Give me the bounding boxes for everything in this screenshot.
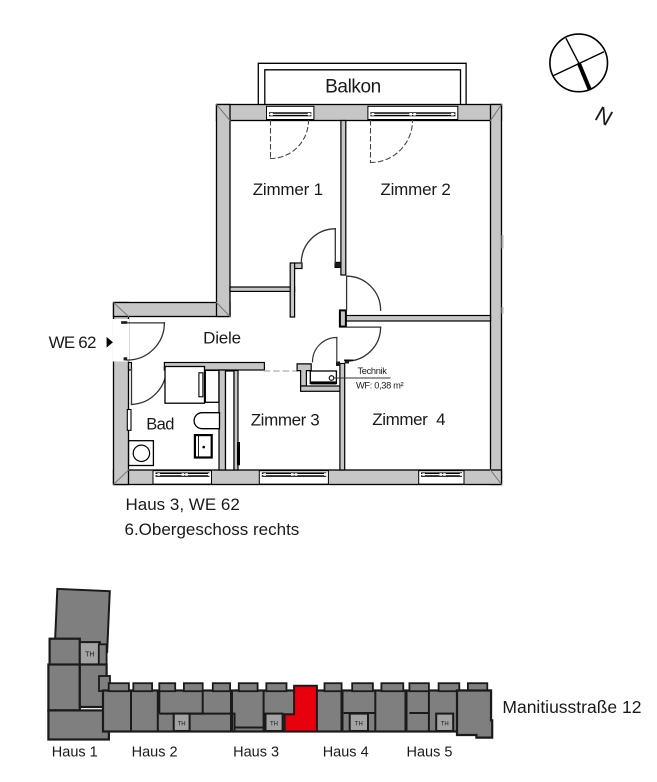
svg-text:Bad: Bad — [146, 415, 174, 433]
svg-text:Zimmer 4: Zimmer 4 — [372, 410, 445, 429]
svg-text:WF: 0,38 m²: WF: 0,38 m² — [356, 381, 404, 391]
svg-text:N: N — [591, 101, 617, 131]
svg-text:TH: TH — [178, 722, 186, 728]
svg-text:TH: TH — [270, 722, 278, 728]
svg-text:TH: TH — [355, 722, 363, 728]
svg-text:6.Obergeschoss rechts: 6.Obergeschoss rechts — [125, 520, 300, 539]
svg-text:Haus 1: Haus 1 — [52, 745, 98, 761]
svg-text:Haus 2: Haus 2 — [132, 745, 178, 761]
svg-text:Zimmer 2: Zimmer 2 — [380, 180, 450, 199]
svg-text:Diele: Diele — [203, 329, 241, 348]
svg-text:TH: TH — [441, 722, 449, 728]
svg-text:Haus 3: Haus 3 — [233, 745, 279, 761]
svg-text:Haus 4: Haus 4 — [323, 745, 369, 761]
svg-text:TH: TH — [85, 652, 94, 659]
svg-text:WE 62: WE 62 — [49, 333, 96, 352]
svg-text:Haus 3, WE 62: Haus 3, WE 62 — [126, 495, 240, 514]
svg-text:Haus 5: Haus 5 — [407, 745, 453, 761]
svg-text:Balkon: Balkon — [325, 77, 381, 98]
svg-text:Technik: Technik — [358, 366, 388, 376]
svg-text:Manitiusstraße 12: Manitiusstraße 12 — [502, 697, 641, 717]
svg-text:Zimmer 1: Zimmer 1 — [253, 180, 323, 199]
svg-text:Zimmer 3: Zimmer 3 — [251, 410, 320, 429]
